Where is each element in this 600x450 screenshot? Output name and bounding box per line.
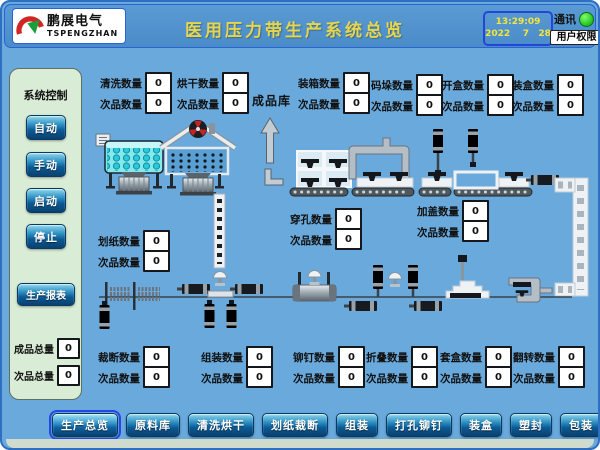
counter-box-open: 开盒数量0 次品数量0	[438, 74, 514, 116]
counter-punch: 穿孔数量0 次品数量0	[286, 208, 362, 250]
value-box: 0	[411, 346, 438, 368]
pick-place-cylinders	[422, 129, 559, 188]
flow-arrow-up-icon	[261, 118, 279, 163]
nav-tab-assembly[interactable]: 组装	[336, 413, 378, 437]
value-box: 0	[335, 208, 362, 230]
defect-box: 0	[246, 366, 273, 388]
counter-label: 装箱数量	[294, 76, 340, 91]
brand-logo-icon	[16, 11, 44, 41]
nav-tab-production-overview[interactable]: 生产总览	[52, 413, 118, 437]
defect-label: 次品数量	[286, 233, 332, 248]
counter-label: 铆钉数量	[289, 350, 335, 365]
counter-label: 翻转数量	[509, 350, 555, 365]
palletizer-gantry	[349, 138, 413, 187]
finished-total-value: 0	[57, 338, 80, 359]
defect-box: 0	[145, 92, 172, 114]
defect-label: 次品数量	[413, 225, 459, 240]
defect-label: 次品数量	[438, 99, 484, 114]
hmi-screen: 鹏展电气 TSPENGZHAN 医用压力带生产系统总览 13:29:09 202…	[0, 0, 600, 450]
defect-label: 次品数量	[362, 371, 408, 386]
counter-cap: 加盖数量0 次品数量0	[413, 200, 489, 242]
comm-status-light-icon	[579, 12, 594, 27]
counter-label: 折叠数量	[362, 350, 408, 365]
defect-label: 次品数量	[508, 99, 554, 114]
counter-label: 开盒数量	[438, 78, 484, 93]
corner-chute-icon	[265, 169, 283, 185]
value-box: 0	[143, 230, 170, 252]
clock-display: 13:29:09 2022 7 28	[483, 11, 553, 46]
counter-label: 码垛数量	[367, 78, 413, 93]
counter-fold: 折叠数量0 次品数量0	[362, 346, 438, 388]
defect-box: 0	[143, 366, 170, 388]
defect-label: 次品数量	[436, 371, 482, 386]
system-control-panel: 系统控制 自动 手动 启动 停止 生产报表 成品总量 0 次品总量 0	[9, 68, 82, 400]
counter-flip: 翻转数量0 次品数量0	[509, 346, 585, 388]
washing-machine	[96, 134, 163, 195]
counter-label: 裁断数量	[94, 350, 140, 365]
start-button[interactable]: 启动	[26, 188, 66, 213]
counter-label: 加盖数量	[413, 204, 459, 219]
header-bar: 鹏展电气 TSPENGZHAN 医用压力带生产系统总览 13:29:09 202…	[4, 4, 596, 48]
counter-dry: 烘干数量0 次品数量0	[173, 72, 249, 114]
counter-label: 穿孔数量	[286, 212, 332, 227]
defect-box: 0	[335, 228, 362, 250]
brand-name-cn: 鹏展电气	[47, 15, 118, 28]
defect-box: 0	[338, 366, 365, 388]
counter-paper-score: 划纸数量0 次品数量0	[94, 230, 170, 272]
counter-label: 烘干数量	[173, 76, 219, 91]
stop-button[interactable]: 停止	[26, 224, 66, 249]
brand-logo: 鹏展电气 TSPENGZHAN	[12, 8, 126, 44]
defect-box: 0	[462, 220, 489, 242]
defect-label: 次品数量	[294, 97, 340, 112]
nav-tab-plastic-seal[interactable]: 塑封	[510, 413, 552, 437]
counter-palletizing: 码垛数量0 次品数量0	[367, 74, 443, 116]
counter-cut: 裁断数量0 次品数量0	[94, 346, 170, 388]
defect-label: 次品数量	[197, 371, 243, 386]
defect-box: 0	[222, 92, 249, 114]
clock-time: 13:29:09	[496, 17, 541, 28]
sealing-press	[446, 255, 489, 298]
defect-total-value: 0	[57, 365, 80, 386]
value-box: 0	[222, 72, 249, 94]
value-box: 0	[246, 346, 273, 368]
defect-box: 0	[143, 250, 170, 272]
defect-box: 0	[558, 366, 585, 388]
nav-tab-punch-rivet[interactable]: 打孔铆钉	[386, 413, 452, 437]
c-frame-press	[509, 278, 552, 302]
system-control-title: 系统控制	[10, 87, 81, 103]
counter-label: 组装数量	[197, 350, 243, 365]
page-title: 医用压力带生产系统总览	[145, 16, 445, 41]
counter-assembly: 组装数量0 次品数量0	[197, 346, 273, 388]
counter-boxing: 装箱数量0 次品数量0	[294, 72, 370, 114]
nav-tab-paper-cut[interactable]: 划纸裁断	[262, 413, 328, 437]
auto-mode-button[interactable]: 自动	[26, 115, 66, 140]
comm-status: 通讯	[554, 11, 594, 27]
counter-rivet: 铆钉数量0 次品数量0	[289, 346, 365, 388]
conveyor-belts	[290, 188, 532, 196]
vertical-conveyor	[214, 194, 225, 268]
nav-tab-box-load[interactable]: 装盒	[460, 413, 502, 437]
value-box: 0	[557, 74, 584, 96]
defect-label: 次品数量	[96, 97, 142, 112]
defect-label: 次品数量	[94, 371, 140, 386]
defect-label: 次品数量	[289, 371, 335, 386]
finished-total-row: 成品总量 0	[14, 338, 80, 359]
defect-box: 0	[557, 94, 584, 116]
defect-label: 次品数量	[509, 371, 555, 386]
value-box: 0	[558, 346, 585, 368]
value-box: 0	[462, 200, 489, 222]
finished-total-label: 成品总量	[14, 341, 54, 356]
assembly-press-station	[177, 272, 263, 329]
defect-box: 0	[343, 92, 370, 114]
defect-total-row: 次品总量 0	[14, 365, 80, 386]
corner-conveyor-right	[555, 178, 588, 296]
defect-label: 次品数量	[94, 255, 140, 270]
production-report-button[interactable]: 生产报表	[17, 283, 75, 306]
value-box: 0	[143, 346, 170, 368]
comm-label: 通讯	[554, 11, 576, 27]
manual-mode-button[interactable]: 手动	[26, 152, 66, 177]
counter-sleeve-box: 套盒数量0 次品数量0	[436, 346, 512, 388]
defect-label: 次品数量	[173, 97, 219, 112]
punch-station	[344, 265, 442, 311]
defect-box: 0	[485, 366, 512, 388]
capping-machine	[293, 271, 336, 302]
bottom-nav: 生产总览 原料库 清洗烘干 划纸裁断 组装 打孔铆钉 装盒 塑封 包装 成品暂存	[52, 413, 600, 437]
fan-icon	[189, 120, 207, 138]
nav-tab-packaging[interactable]: 包装	[560, 413, 600, 437]
clock-date: 2022 7 28	[485, 29, 551, 40]
value-box: 0	[343, 72, 370, 94]
value-box: 0	[485, 346, 512, 368]
counter-label: 装盒数量	[508, 78, 554, 93]
brand-name-en: TSPENGZHAN	[47, 30, 118, 38]
bottom-bezel	[6, 439, 594, 448]
nav-tab-raw-material[interactable]: 原料库	[126, 413, 180, 437]
counter-label: 划纸数量	[94, 234, 140, 249]
storage-shelf	[297, 151, 351, 187]
nav-tab-wash-dry[interactable]: 清洗烘干	[188, 413, 254, 437]
user-permission-button[interactable]: 用户权限	[550, 30, 600, 45]
counter-box-load: 装盒数量0 次品数量0	[508, 74, 584, 116]
defect-box: 0	[411, 366, 438, 388]
counter-label: 套盒数量	[436, 350, 482, 365]
value-box: 0	[145, 72, 172, 94]
counter-wash: 清洗数量0 次品数量0	[96, 72, 172, 114]
paper-cut-station	[100, 282, 161, 329]
finished-warehouse-label: 成品库	[252, 92, 291, 109]
counter-label: 清洗数量	[96, 76, 142, 91]
value-box: 0	[338, 346, 365, 368]
drying-machine	[161, 120, 235, 196]
defect-label: 次品数量	[367, 99, 413, 114]
defect-total-label: 次品总量	[14, 368, 54, 383]
